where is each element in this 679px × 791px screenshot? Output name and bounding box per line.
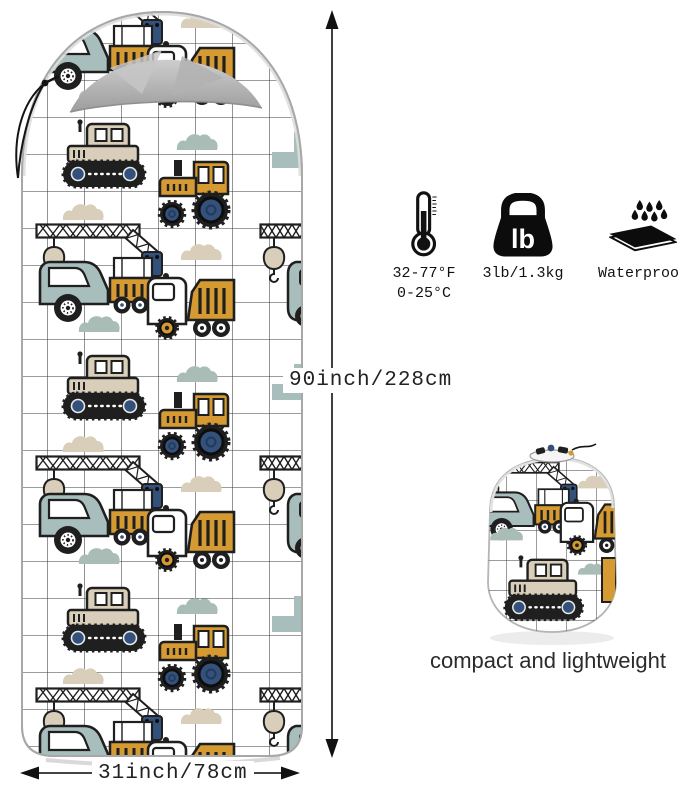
stuff-sack-illustration [476,440,628,650]
feature-waterproof: Waterproof [598,184,679,284]
sleeping-bag-illustration [10,6,314,768]
thermometer-icon [407,190,441,260]
feature-temperature: 32-77°F 0-25°C [388,184,460,303]
feature-weight: lb 3lb/1.3kg [480,184,566,284]
rain-drops [632,200,668,221]
stuff-sack-caption: compact and lightweight [428,648,668,674]
product-infographic: 90inch/228cm 31inch/78cm 32-77°F 0-25°C [0,0,679,791]
waterproof-mat-icon [609,200,677,260]
waterproof-label: Waterproof [598,264,679,284]
height-dimension-label: 90inch/228cm [283,368,458,393]
kettlebell-weight-icon: lb [485,193,561,260]
sack-cinch-top [530,444,596,462]
sack-print-pattern [476,440,628,650]
weight-label: 3lb/1.3kg [482,264,563,284]
bag-print-pattern [10,6,314,768]
temperature-range-c: 0-25°C [392,284,455,304]
temperature-range-f: 32-77°F [392,264,455,284]
lb-badge-text: lb [511,224,535,254]
sack-shadow [490,631,614,645]
width-dimension-label: 31inch/78cm [92,761,254,786]
